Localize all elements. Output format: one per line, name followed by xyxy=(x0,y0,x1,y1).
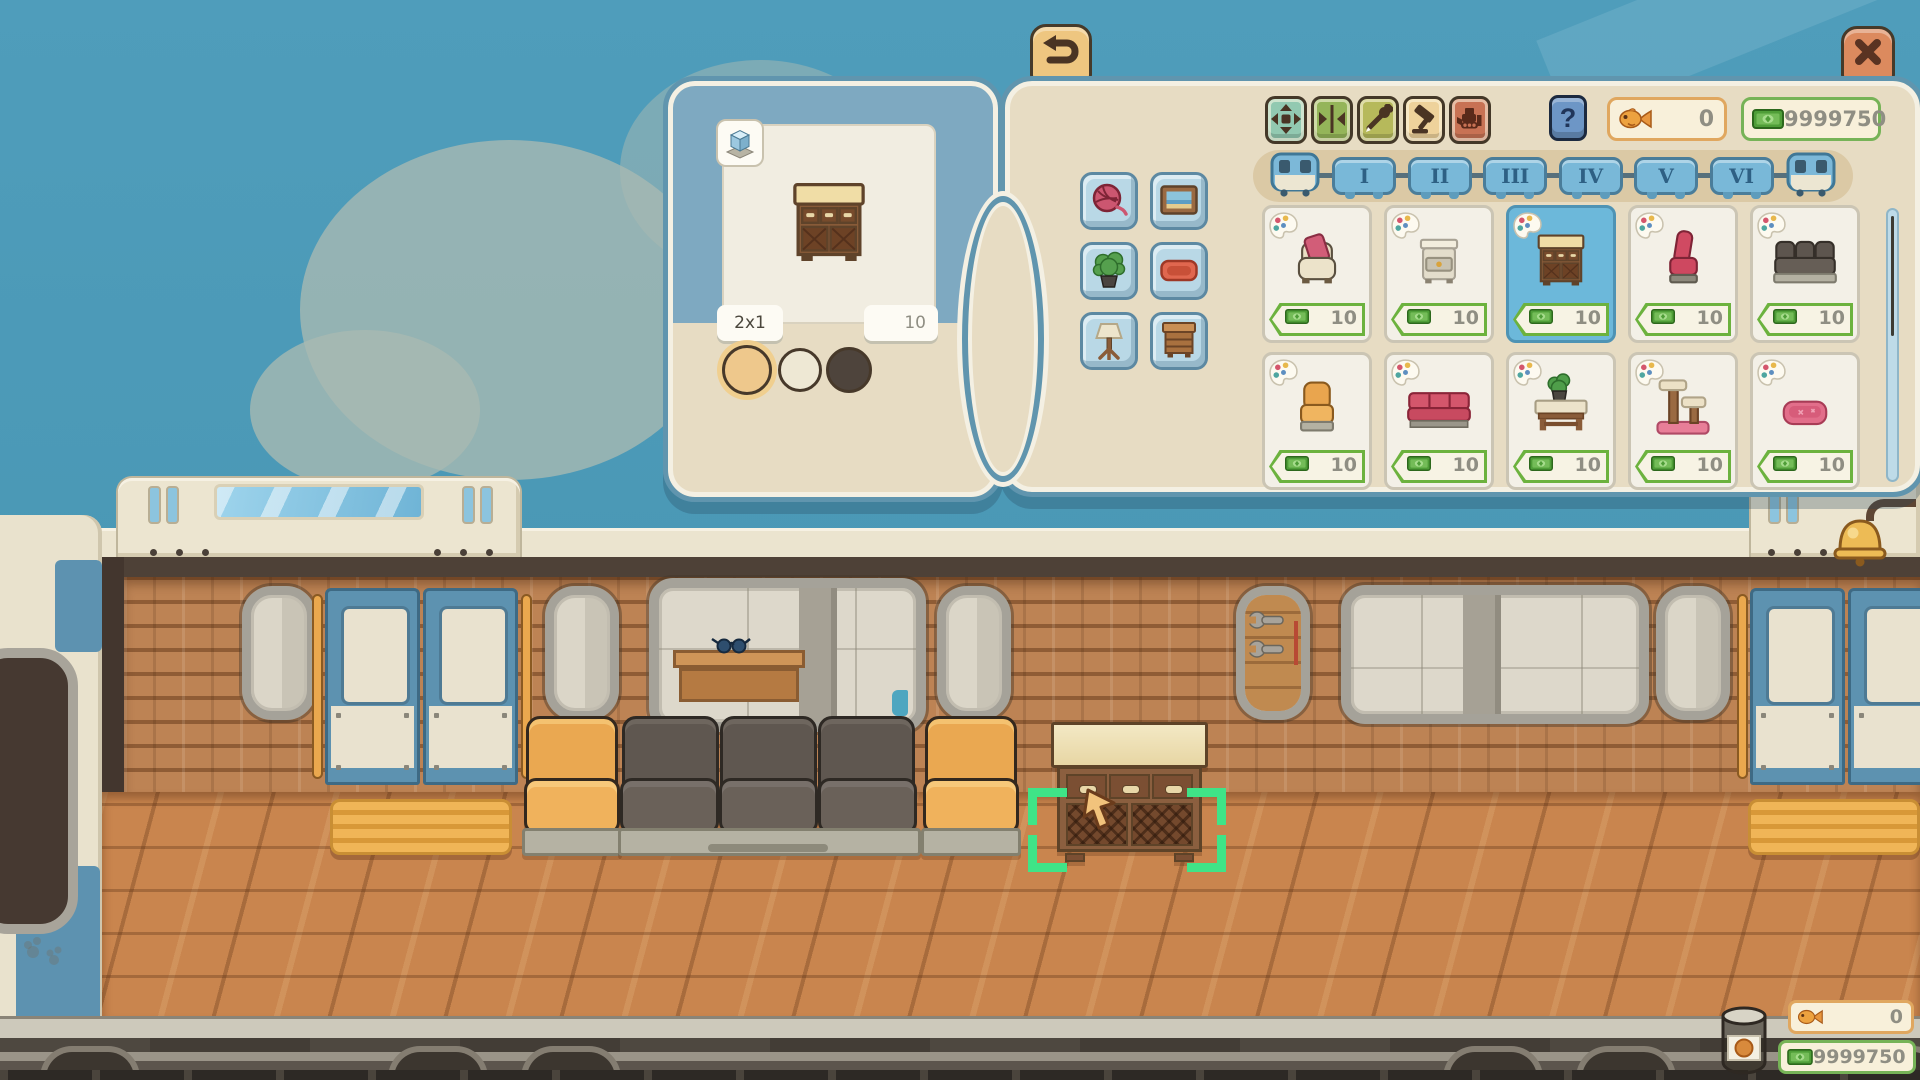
price-tag: 10 xyxy=(1391,450,1487,483)
car-tab-label: II xyxy=(1430,164,1449,188)
move-arrows-icon xyxy=(1271,104,1301,137)
car-tab-5[interactable]: V xyxy=(1634,157,1698,195)
size-chip: 2x1 xyxy=(717,305,783,341)
fish-count-value: 0 xyxy=(1652,107,1724,132)
oval-window xyxy=(545,586,619,720)
close-x-icon xyxy=(1853,37,1883,70)
roof-vent xyxy=(166,486,179,524)
shop-item-grid: 10 10 10 10 10 10 xyxy=(1262,205,1860,490)
neighbor-train-car xyxy=(0,515,102,1016)
item-sprite xyxy=(1401,226,1477,298)
back-button[interactable] xyxy=(1030,24,1092,80)
locomotive-icon[interactable] xyxy=(1785,151,1837,201)
money-bill-icon xyxy=(1285,456,1309,475)
large-window-right xyxy=(1341,585,1649,724)
price-tag: 10 xyxy=(1757,450,1853,483)
money-bill-icon xyxy=(1529,456,1553,475)
fish-counter-bottom: 0 xyxy=(1788,1000,1914,1034)
oval-window xyxy=(1656,586,1730,720)
help-button[interactable]: ? xyxy=(1549,95,1587,141)
door-leaf xyxy=(1848,588,1920,785)
money-bill-icon xyxy=(1651,309,1675,328)
fish-count-value: 0 xyxy=(1823,1006,1911,1028)
door-handrail xyxy=(312,594,323,779)
item-sprite xyxy=(1767,226,1843,298)
paint-tool[interactable] xyxy=(1357,96,1399,144)
category-buttons xyxy=(1080,172,1208,370)
item-sprite xyxy=(1279,373,1355,445)
item-sprite xyxy=(1401,373,1477,445)
price-tag: 10 xyxy=(1391,303,1487,336)
move-tool[interactable] xyxy=(1265,96,1307,144)
money-bill-icon xyxy=(1787,1049,1813,1065)
price-tag: 10 xyxy=(1269,450,1365,483)
blue-object xyxy=(892,690,908,716)
placed-orange-armchair[interactable] xyxy=(522,716,622,856)
price-tag: 10 xyxy=(1513,450,1609,483)
item-price: 10 xyxy=(1819,307,1845,329)
pet-bed-icon xyxy=(1160,257,1198,286)
item-price: 10 xyxy=(1697,454,1723,476)
cursor-arrow-icon xyxy=(1080,788,1122,840)
item-sprite xyxy=(1279,226,1355,298)
item-price: 10 xyxy=(1697,307,1723,329)
item-price: 10 xyxy=(1819,454,1845,476)
money-bill-icon xyxy=(1773,309,1797,328)
money-bill-icon xyxy=(1285,309,1309,328)
panel-divider-lens xyxy=(962,196,1044,482)
item-grid-scrollbar[interactable] xyxy=(1886,208,1899,482)
hammer-icon xyxy=(1409,104,1439,137)
flip-horizontal-icon xyxy=(1317,104,1347,137)
roof-vent xyxy=(148,486,161,524)
train-frame-strip xyxy=(0,1016,1920,1038)
placed-gray-sofa[interactable] xyxy=(618,716,921,856)
build-tool[interactable] xyxy=(1403,96,1445,144)
shop-item-card[interactable]: 10 xyxy=(1628,352,1738,490)
category-pet-beds[interactable] xyxy=(1150,242,1208,300)
car-tab-4[interactable]: IV xyxy=(1559,157,1623,195)
shop-item-card[interactable]: 10 xyxy=(1384,352,1494,490)
door-handrail xyxy=(1737,594,1748,779)
preview-item-image xyxy=(771,170,887,278)
roof-vent xyxy=(462,486,475,524)
item-sprite xyxy=(1645,226,1721,298)
oval-window xyxy=(242,586,316,720)
game-screen: 0 9999750 2x1 10 ? 0 9999750 xyxy=(0,0,1920,1080)
back-arrow-icon xyxy=(1041,35,1081,70)
price-chip: 10 xyxy=(864,305,938,341)
cloud xyxy=(250,330,480,490)
roof-vent xyxy=(480,486,493,524)
shop-item-card[interactable]: 10 xyxy=(1628,205,1738,343)
shop-item-card[interactable]: 10 xyxy=(1262,352,1372,490)
money-bill-icon xyxy=(1407,456,1431,475)
car-tab-3[interactable]: III xyxy=(1483,157,1547,195)
item-price: 10 xyxy=(1453,454,1479,476)
yarn-ball-icon xyxy=(1090,181,1128,222)
bell-icon xyxy=(1828,498,1920,576)
money-counter-bottom: 9999750 xyxy=(1778,1040,1916,1074)
door-leaf xyxy=(423,588,518,785)
table-lamp-icon xyxy=(1092,320,1126,363)
train-trim xyxy=(102,557,1920,577)
scrollbar-handle[interactable] xyxy=(1891,216,1894,336)
item-sprite xyxy=(1767,373,1843,445)
car-tab-1[interactable]: I xyxy=(1332,157,1396,195)
wrench-pair-icon xyxy=(1247,609,1285,671)
car-window xyxy=(0,648,78,934)
view-toggle-button[interactable] xyxy=(716,119,764,167)
shop-item-card[interactable]: 10 xyxy=(1750,352,1860,490)
edit-toolbar xyxy=(1265,96,1491,144)
large-window-left xyxy=(649,578,926,732)
shop-item-card[interactable]: 10 xyxy=(1262,205,1372,343)
money-bill-icon xyxy=(1407,309,1431,328)
category-furniture[interactable] xyxy=(1150,312,1208,370)
picture-frame-icon xyxy=(1160,185,1198,218)
car-tab-label: V xyxy=(1658,164,1674,188)
category-plants[interactable] xyxy=(1080,242,1138,300)
money-bill-icon xyxy=(1529,309,1553,328)
item-preview-panel: 2x1 10 xyxy=(663,76,1003,502)
train-car-tabs: I II III IV V VI xyxy=(1253,150,1853,202)
desk-front xyxy=(679,668,799,702)
item-price: 10 xyxy=(1331,454,1357,476)
item-sprite xyxy=(1645,373,1721,445)
tool-window xyxy=(1236,586,1310,720)
car-tab-label: I xyxy=(1360,164,1369,188)
goldfish-icon xyxy=(1618,106,1652,132)
money-bill-icon xyxy=(1752,109,1784,129)
car-tab-label: III xyxy=(1501,164,1529,188)
eyedropper-icon xyxy=(1363,104,1393,137)
shop-item-card[interactable]: 10 xyxy=(1384,205,1494,343)
train-door-left xyxy=(325,588,521,785)
fish-counter-top: 0 xyxy=(1607,97,1727,141)
money-value: 9999750 xyxy=(1813,1046,1914,1068)
car-tab-2[interactable]: II xyxy=(1408,157,1472,195)
roof-window-strip xyxy=(214,484,424,520)
tool-red-stick xyxy=(1294,621,1298,665)
car-tab-label: IV xyxy=(1578,164,1603,188)
door-mat xyxy=(1748,799,1920,855)
price-tag: 10 xyxy=(1635,303,1731,336)
isometric-cube-icon xyxy=(722,125,758,162)
price-tag: 10 xyxy=(1757,303,1853,336)
price-tag: 10 xyxy=(1513,303,1609,336)
color-swatch-dark-brown[interactable] xyxy=(826,347,872,393)
placed-orange-armchair[interactable] xyxy=(921,716,1021,856)
category-lamps[interactable] xyxy=(1080,312,1138,370)
color-swatch-cream[interactable] xyxy=(778,348,822,392)
size-label: 2x1 xyxy=(734,313,766,333)
platform-pillar xyxy=(1463,595,1501,714)
price-label: 10 xyxy=(904,313,926,333)
item-price: 10 xyxy=(1331,307,1357,329)
goldfish-icon xyxy=(1797,1007,1823,1027)
item-price: 10 xyxy=(1575,307,1601,329)
shop-item-card[interactable]: 10 xyxy=(1506,352,1616,490)
treat-jar-icon[interactable] xyxy=(1716,1004,1772,1080)
selection-brackets xyxy=(1028,788,1226,872)
item-sprite xyxy=(1523,373,1599,445)
sunglasses-icon xyxy=(711,636,751,658)
door-leaf xyxy=(325,588,420,785)
category-toys[interactable] xyxy=(1080,172,1138,230)
car-tab-6[interactable]: VI xyxy=(1710,157,1774,195)
dresser-icon xyxy=(1161,321,1197,362)
price-tag: 10 xyxy=(1635,450,1731,483)
car-tab-label: VI xyxy=(1729,164,1754,188)
price-tag: 10 xyxy=(1269,303,1365,336)
item-price: 10 xyxy=(1575,454,1601,476)
paw-print-icon xyxy=(20,935,64,969)
door-leaf xyxy=(1750,588,1845,785)
train-door-right xyxy=(1750,588,1920,785)
shop-item-card[interactable]: 10 xyxy=(1750,205,1860,343)
locomotive-icon[interactable] xyxy=(1269,151,1321,201)
money-counter-top: 9999750 xyxy=(1741,97,1881,141)
item-price: 10 xyxy=(1453,307,1479,329)
rail-track xyxy=(0,1070,1920,1080)
shop-item-card[interactable]: 10 xyxy=(1506,205,1616,343)
money-value: 9999750 xyxy=(1784,107,1896,131)
flip-tool[interactable] xyxy=(1311,96,1353,144)
potted-plant-icon xyxy=(1091,250,1127,293)
item-sprite xyxy=(1523,226,1599,298)
oval-window xyxy=(937,586,1011,720)
door-mat xyxy=(330,799,512,855)
demolish-tool[interactable] xyxy=(1449,96,1491,144)
bulldozer-icon xyxy=(1455,104,1485,137)
close-button[interactable] xyxy=(1841,26,1895,80)
car-blue-panel xyxy=(55,560,102,652)
category-wall-decor[interactable] xyxy=(1150,172,1208,230)
train-roof-unit-left xyxy=(118,478,520,557)
money-bill-icon xyxy=(1651,456,1675,475)
color-swatch-tan[interactable] xyxy=(722,345,772,395)
money-bill-icon xyxy=(1773,456,1797,475)
